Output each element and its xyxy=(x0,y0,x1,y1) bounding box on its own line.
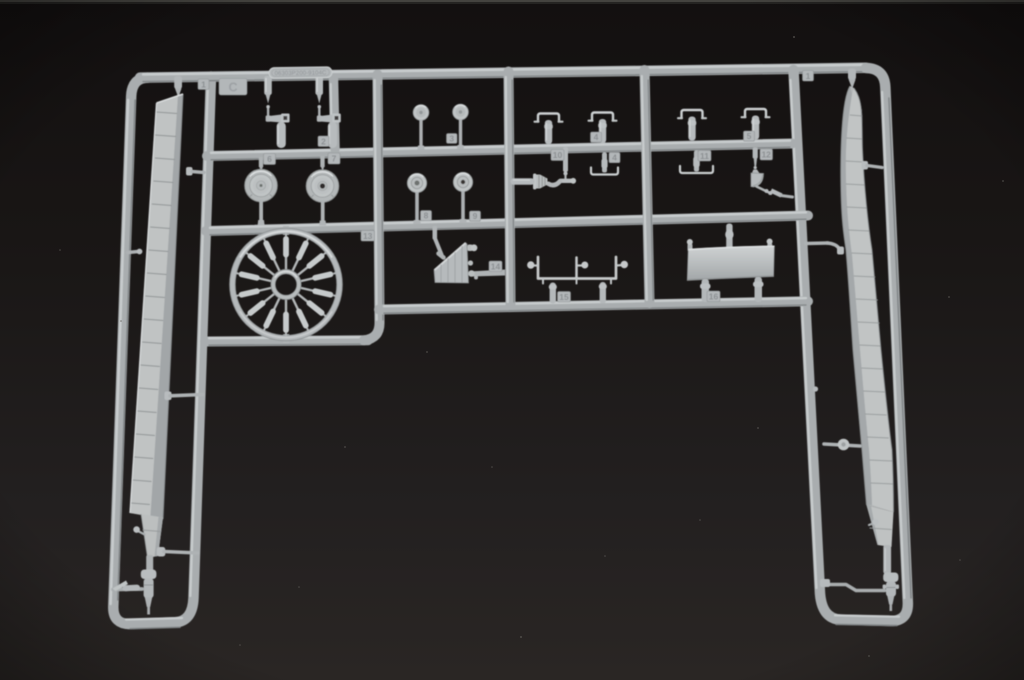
svg-text:3: 3 xyxy=(449,133,454,143)
svg-text:6: 6 xyxy=(267,154,272,164)
svg-text:7: 7 xyxy=(332,154,337,164)
svg-text:12: 12 xyxy=(761,150,771,160)
svg-text:10: 10 xyxy=(553,150,563,160)
svg-text:8: 8 xyxy=(424,211,429,221)
svg-text:4: 4 xyxy=(594,132,599,142)
svg-text:16: 16 xyxy=(709,291,719,301)
svg-text:13: 13 xyxy=(363,231,373,241)
svg-text:C: C xyxy=(228,81,237,95)
svg-text:9: 9 xyxy=(473,211,478,221)
svg-text:1: 1 xyxy=(201,79,206,89)
svg-text:1: 1 xyxy=(806,71,811,81)
svg-text:5: 5 xyxy=(747,131,752,141)
svg-text:11: 11 xyxy=(700,151,709,161)
svg-text:2: 2 xyxy=(321,136,326,146)
svg-text:4: 4 xyxy=(612,153,617,163)
svg-text:15: 15 xyxy=(559,292,569,302)
svg-text:06303P200-9104C: 06303P200-9104C xyxy=(275,70,328,77)
svg-text:14: 14 xyxy=(491,261,501,271)
